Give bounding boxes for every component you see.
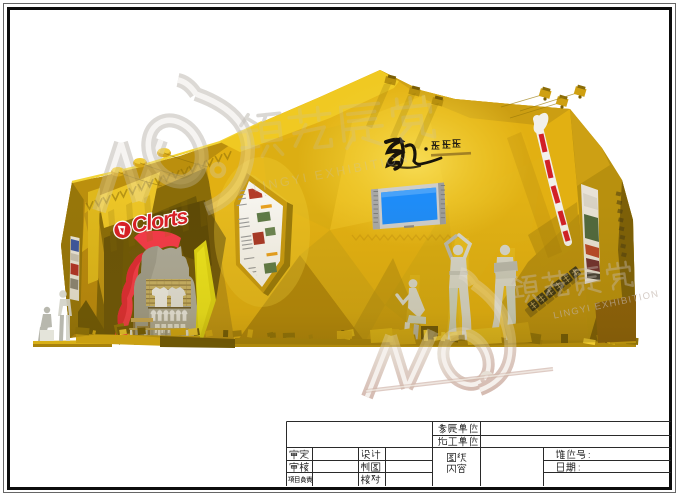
svg-text::: : <box>578 463 581 473</box>
svg-text::: : <box>588 450 591 460</box>
